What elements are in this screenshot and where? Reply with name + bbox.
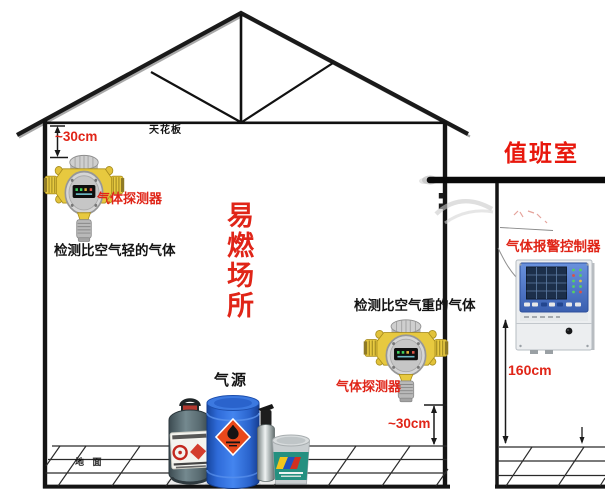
controller-label: 气体报警控制器 — [506, 240, 601, 254]
ground-label: 地 面 — [75, 458, 105, 467]
top-offset-label: ~30cm — [55, 130, 97, 144]
lpg-cylinder-icon — [169, 400, 211, 483]
detector-top-note: 检测比空气轻的气体 — [54, 244, 176, 258]
bucket-icon — [273, 435, 310, 484]
gas-source-label: 气源 — [214, 373, 248, 389]
installation-diagram: 天花板 ~30cm 气体探测器 检测比空气轻的气体 易燃场所 值班室 气体报警控… — [0, 0, 605, 504]
bottom-offset-label: ~30cm — [388, 417, 430, 431]
duty-room-title: 值班室 — [504, 141, 579, 165]
detector-bottom-note: 检测比空气重的气体 — [354, 299, 476, 313]
small-cylinder-icon — [258, 404, 275, 482]
detector-bottom-label: 气体探测器 — [336, 380, 401, 394]
flammable-area-label: 易燃场所 — [224, 201, 251, 316]
duty-floor-grid — [497, 447, 605, 486]
gas-source-group — [166, 396, 310, 489]
mount-height-label: 160cm — [508, 363, 552, 378]
ceiling-label: 天花板 — [149, 126, 182, 137]
detector-top-label: 气体探测器 — [97, 192, 162, 206]
roof-truss — [17, 13, 470, 138]
alarm-controller-icon — [516, 260, 595, 354]
blue-drum-icon — [207, 396, 259, 489]
